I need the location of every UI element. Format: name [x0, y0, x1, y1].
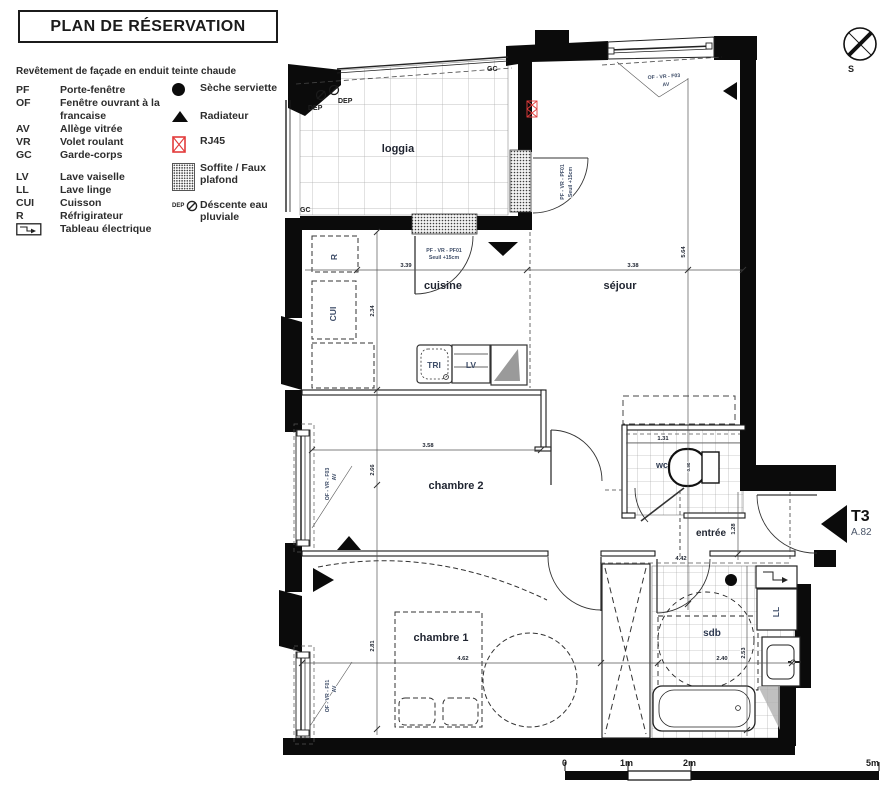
- door-chambre2: [551, 430, 602, 485]
- room-chambre1: chambre 1: [413, 632, 468, 644]
- compass-south: S: [848, 64, 854, 74]
- kitchen-fixtures: [312, 236, 527, 388]
- dim-chambre2-w: 3.58: [422, 443, 434, 449]
- label-cuisson: CUI: [328, 307, 338, 322]
- room-sdb: sdb: [703, 628, 721, 639]
- radiateur-chambre2: [337, 536, 361, 550]
- unit-lot: A.82: [851, 527, 872, 538]
- tableau-electrique-plan: [756, 566, 797, 588]
- dim-column-top: 2.34: [370, 305, 376, 317]
- entrance-arrow-icon: [821, 505, 847, 543]
- gc-top-label: GC: [487, 66, 498, 73]
- dim-sdb-w: 2.40: [716, 656, 727, 662]
- label-chambre2-window: OF - VR - F03: [325, 468, 331, 501]
- label-tri: TRI: [427, 360, 441, 370]
- room-chambre2: chambre 2: [428, 480, 483, 492]
- label-sejour-west-seuil: Seuil +15cm: [568, 167, 574, 198]
- kitchen-cabinet: [491, 345, 527, 385]
- gc-bottom-label: GC: [300, 207, 311, 214]
- soffite-above-wc: [623, 396, 735, 424]
- label-sejour-top-window: OF - VR - F03: [647, 73, 680, 81]
- compass: S: [844, 28, 876, 74]
- chambre1-window: [294, 646, 352, 744]
- dim-chambre1-h: 2.81: [370, 640, 376, 652]
- dim-chambre2-h: 2.66: [370, 464, 376, 476]
- dep-label-1: DEP: [308, 105, 323, 112]
- scale-bar: 0 1m 2m 5m: [562, 758, 879, 780]
- scale-2m: 2m: [683, 758, 696, 768]
- radiateur-sejour: [723, 82, 737, 100]
- door-chambre1: [548, 557, 601, 611]
- unit-tag: T3 A.82: [821, 505, 872, 543]
- dim-sdb-h: 2.53: [741, 647, 747, 659]
- label-ll: LL: [771, 607, 781, 617]
- floor-plan-page: PLAN DE RÉSERVATION Revêtement de façade…: [0, 0, 891, 800]
- bathtub: [653, 686, 755, 731]
- label-cuisine-door: PF - VR - PF01: [426, 248, 462, 254]
- room-wc: wc: [655, 460, 668, 470]
- label-sejour-west-door: PF - VR - PF01: [560, 164, 566, 200]
- room-sejour: séjour: [603, 280, 637, 292]
- radiateur-chambre1: [313, 568, 334, 592]
- label-chambre1-av: AV: [332, 685, 338, 692]
- dim-entree-w: 4.42: [675, 556, 686, 562]
- label-chambre1-window: OF - VR - F01: [325, 680, 331, 713]
- scale-1m: 1m: [620, 758, 633, 768]
- floor-plan-drawing: 3.39 3.38 2.34 5.64 3.58 2.66 1.31 0.90 …: [0, 0, 891, 800]
- room-entree: entrée: [696, 528, 726, 539]
- label-refrigerateur: R: [329, 254, 339, 260]
- washbasin: [762, 637, 801, 686]
- seche-serviette-sdb: [725, 574, 737, 586]
- dep-label-2: DEP: [338, 98, 353, 105]
- room-cuisine: cuisine: [424, 280, 462, 292]
- room-loggia: loggia: [382, 143, 415, 155]
- label-lv: LV: [466, 360, 477, 370]
- unit-type: T3: [851, 508, 870, 525]
- radiateur-cuisine: [488, 242, 518, 256]
- dim-wc-d: 0.90: [686, 462, 691, 471]
- dim-sejour-w: 3.38: [627, 263, 639, 269]
- label-sejour-top-av: AV: [662, 82, 670, 88]
- door-entrance: [757, 492, 817, 560]
- dim-entree-h: 1.28: [731, 523, 737, 535]
- scale-0: 0: [562, 758, 567, 768]
- label-chambre2-av: AV: [332, 473, 338, 480]
- scale-5m: 5m: [866, 758, 879, 768]
- dim-cuisine-w: 3.39: [400, 263, 412, 269]
- chambre2-window: [294, 424, 352, 552]
- dim-chambre1-w: 4.62: [457, 656, 468, 662]
- dim-wc-w: 1.31: [657, 436, 669, 442]
- dim-sejour-h: 5.64: [681, 246, 687, 258]
- label-cuisine-door-seuil: Seuil +15cm: [429, 255, 460, 261]
